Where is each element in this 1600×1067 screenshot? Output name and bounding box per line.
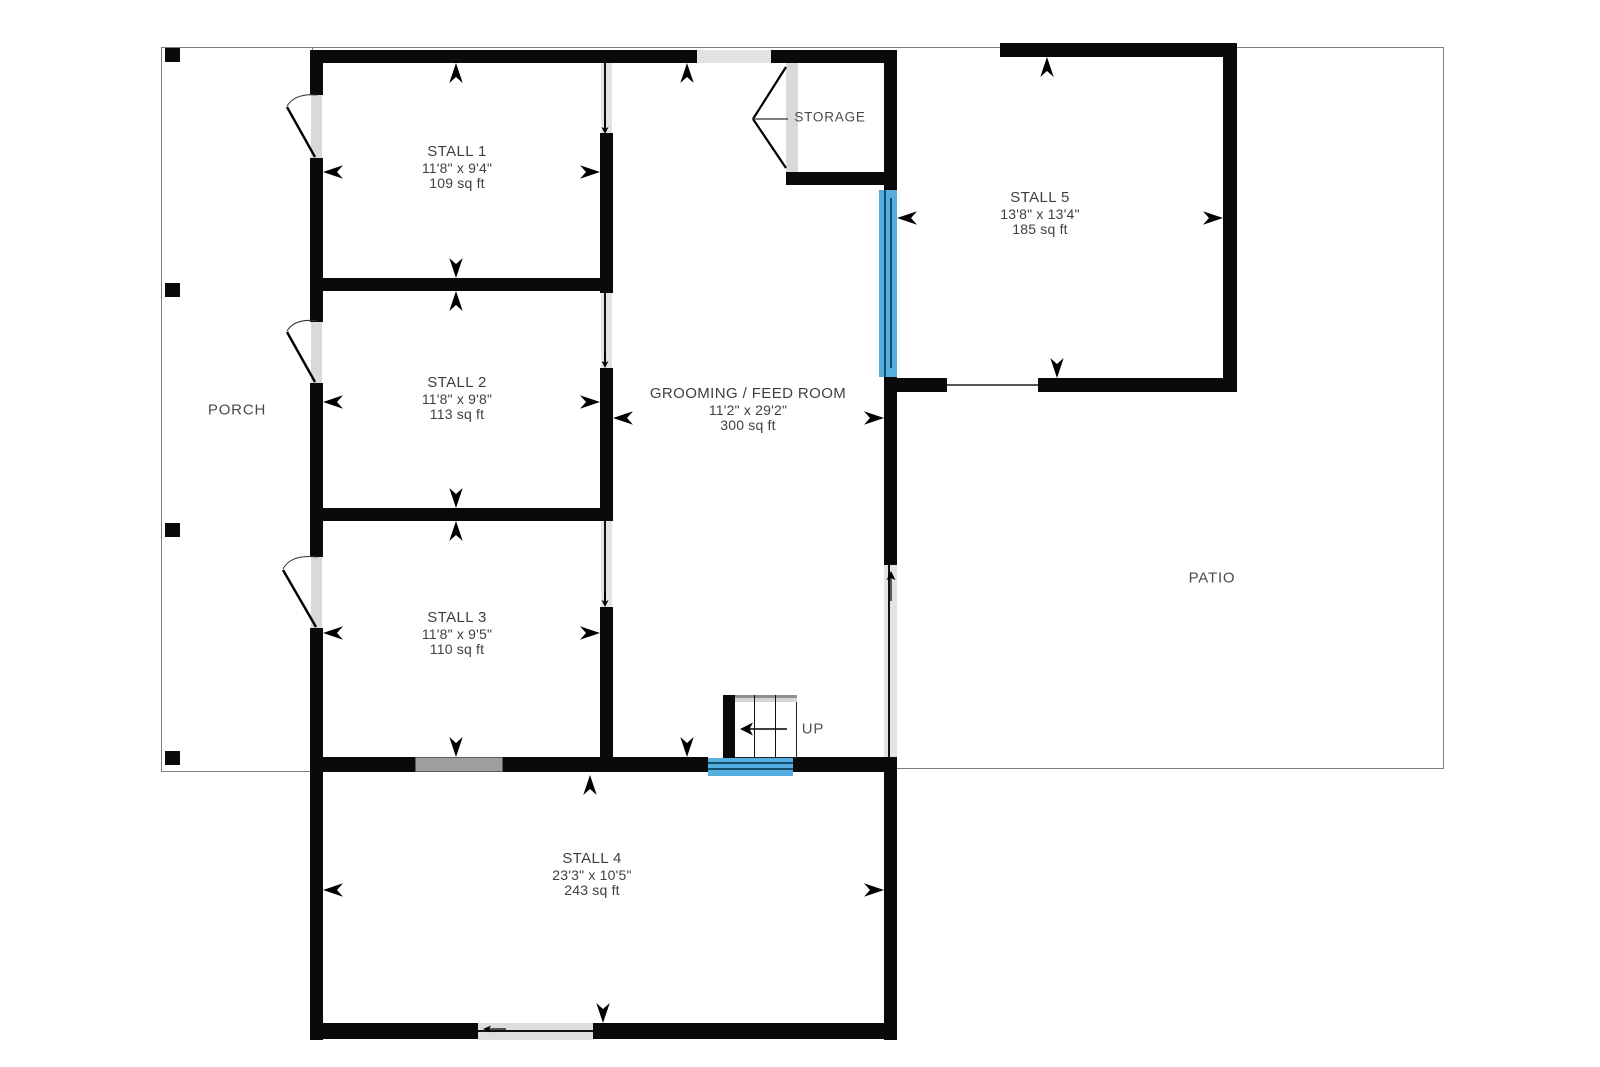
room-label-stall5: STALL 5 13'8" x 13'4" 185 sq ft xyxy=(1000,190,1079,238)
sliding-opening-line xyxy=(888,565,890,757)
wall xyxy=(884,757,897,1040)
door-jamb xyxy=(311,322,322,383)
wall xyxy=(310,158,323,322)
dimension-arrow-r xyxy=(864,883,884,897)
room-name: STALL 5 xyxy=(1000,190,1079,207)
room-label-stall4: STALL 4 23'3" x 10'5" 243 sq ft xyxy=(552,851,631,899)
room-dims: 23'3" x 10'5" xyxy=(552,868,631,884)
dimension-arrow-l xyxy=(323,395,343,409)
dimension-arrow-l xyxy=(323,626,343,640)
dimension-arrow-d xyxy=(596,1003,610,1023)
floor-plan: STALL 1 11'8" x 9'4" 109 sq ft STALL 2 1… xyxy=(0,0,1600,1067)
dimension-arrow-d xyxy=(449,737,463,757)
wall xyxy=(600,133,613,293)
wall xyxy=(310,50,697,63)
dimension-arrow-l xyxy=(323,883,343,897)
room-area: 300 sq ft xyxy=(650,418,846,434)
wall xyxy=(1038,378,1237,392)
dimension-arrow-r xyxy=(580,165,600,179)
door-panel-line xyxy=(884,190,886,377)
porch-label: PORCH xyxy=(208,402,266,419)
dimension-arrow-d xyxy=(1050,358,1064,378)
door-panel-line xyxy=(890,198,892,368)
wall xyxy=(310,1023,478,1039)
stair-tread xyxy=(754,695,755,758)
room-name: STALL 1 xyxy=(422,144,492,161)
dimension-arrow-l xyxy=(323,165,343,179)
dimension-arrow-u xyxy=(680,63,694,83)
dimension-arrow-d xyxy=(449,258,463,278)
door-panel-line xyxy=(708,768,793,770)
wall xyxy=(600,607,613,757)
room-label-stall1: STALL 1 11'8" x 9'4" 109 sq ft xyxy=(422,144,492,192)
dimension-arrow-r xyxy=(864,411,884,425)
dimension-arrow-d xyxy=(680,737,694,757)
wall xyxy=(310,278,613,291)
wall xyxy=(310,383,323,557)
dimension-arrow-l xyxy=(897,211,917,225)
room-area: 109 sq ft xyxy=(422,176,492,192)
room-name: GROOMING / FEED ROOM xyxy=(650,386,846,403)
sliding-door-blue xyxy=(879,190,897,377)
room-label-stall3: STALL 3 11'8" x 9'5" 110 sq ft xyxy=(422,610,492,658)
room-area: 243 sq ft xyxy=(552,883,631,899)
wall xyxy=(771,50,889,63)
dimension-arrow-u xyxy=(449,291,463,311)
sliding-opening-line xyxy=(604,521,606,605)
wall xyxy=(593,1023,897,1039)
porch-post xyxy=(165,523,180,537)
dimension-arrow-d xyxy=(449,488,463,508)
room-name: STALL 2 xyxy=(422,375,492,392)
porch-post xyxy=(165,48,180,62)
dimension-arrow-l xyxy=(613,411,633,425)
room-dims: 13'8" x 13'4" xyxy=(1000,207,1079,223)
dimension-arrow-r xyxy=(580,395,600,409)
sliding-door-line xyxy=(478,1030,593,1032)
dimension-arrow-u xyxy=(1040,57,1054,77)
sliding-opening xyxy=(884,565,897,757)
stair-top-landing xyxy=(735,698,797,702)
wall xyxy=(786,172,897,185)
wall xyxy=(503,757,708,772)
wall xyxy=(1000,43,1237,57)
patio-label: PATIO xyxy=(1189,570,1236,587)
patio-bottom-border xyxy=(897,768,1444,769)
dimension-arrow-u xyxy=(583,775,597,795)
room-area: 185 sq ft xyxy=(1000,222,1079,238)
stairs-up-label: UP xyxy=(802,721,824,738)
room-dims: 11'8" x 9'5" xyxy=(422,627,492,643)
room-label-grooming: GROOMING / FEED ROOM 11'2" x 29'2" 300 s… xyxy=(650,386,846,434)
porch-post xyxy=(165,751,180,765)
sliding-door-gray xyxy=(415,757,503,772)
wall xyxy=(310,628,323,1040)
room-dims: 11'8" x 9'8" xyxy=(422,392,492,408)
patio-top-border xyxy=(161,47,1443,48)
wall xyxy=(884,378,947,392)
sliding-opening xyxy=(601,62,612,133)
doorway-opening xyxy=(697,50,771,63)
door-jamb xyxy=(311,95,322,158)
room-area: 113 sq ft xyxy=(422,407,492,423)
dimension-arrow-u xyxy=(449,521,463,541)
dimension-arrow-u xyxy=(449,63,463,83)
wall-opening-line xyxy=(947,384,1038,386)
door-jamb xyxy=(311,557,322,628)
dimension-arrow-r xyxy=(1203,211,1223,225)
stair-tread xyxy=(775,695,776,758)
sliding-opening xyxy=(601,293,612,368)
sliding-opening-line xyxy=(604,62,606,131)
room-label-stall2: STALL 2 11'8" x 9'8" 113 sq ft xyxy=(422,375,492,423)
sliding-opening-line xyxy=(604,293,606,366)
porch-post xyxy=(165,283,180,297)
wall xyxy=(600,368,613,521)
sliding-opening xyxy=(601,521,612,607)
wall xyxy=(1223,43,1237,392)
room-name: STALL 3 xyxy=(422,610,492,627)
dimension-arrow-r xyxy=(580,626,600,640)
door-panel-line xyxy=(708,762,793,764)
stair-left-wall xyxy=(723,695,735,758)
storage-label: STORAGE xyxy=(794,110,865,125)
sliding-door-blue xyxy=(708,758,793,776)
room-name: STALL 4 xyxy=(552,851,631,868)
room-dims: 11'8" x 9'4" xyxy=(422,161,492,177)
wall xyxy=(793,757,897,772)
patio-right-border xyxy=(1443,47,1444,768)
wall xyxy=(884,50,897,191)
room-area: 110 sq ft xyxy=(422,642,492,658)
room-dims: 11'2" x 29'2" xyxy=(650,403,846,419)
wall xyxy=(310,757,415,772)
wall xyxy=(310,508,613,521)
wall xyxy=(884,377,897,565)
